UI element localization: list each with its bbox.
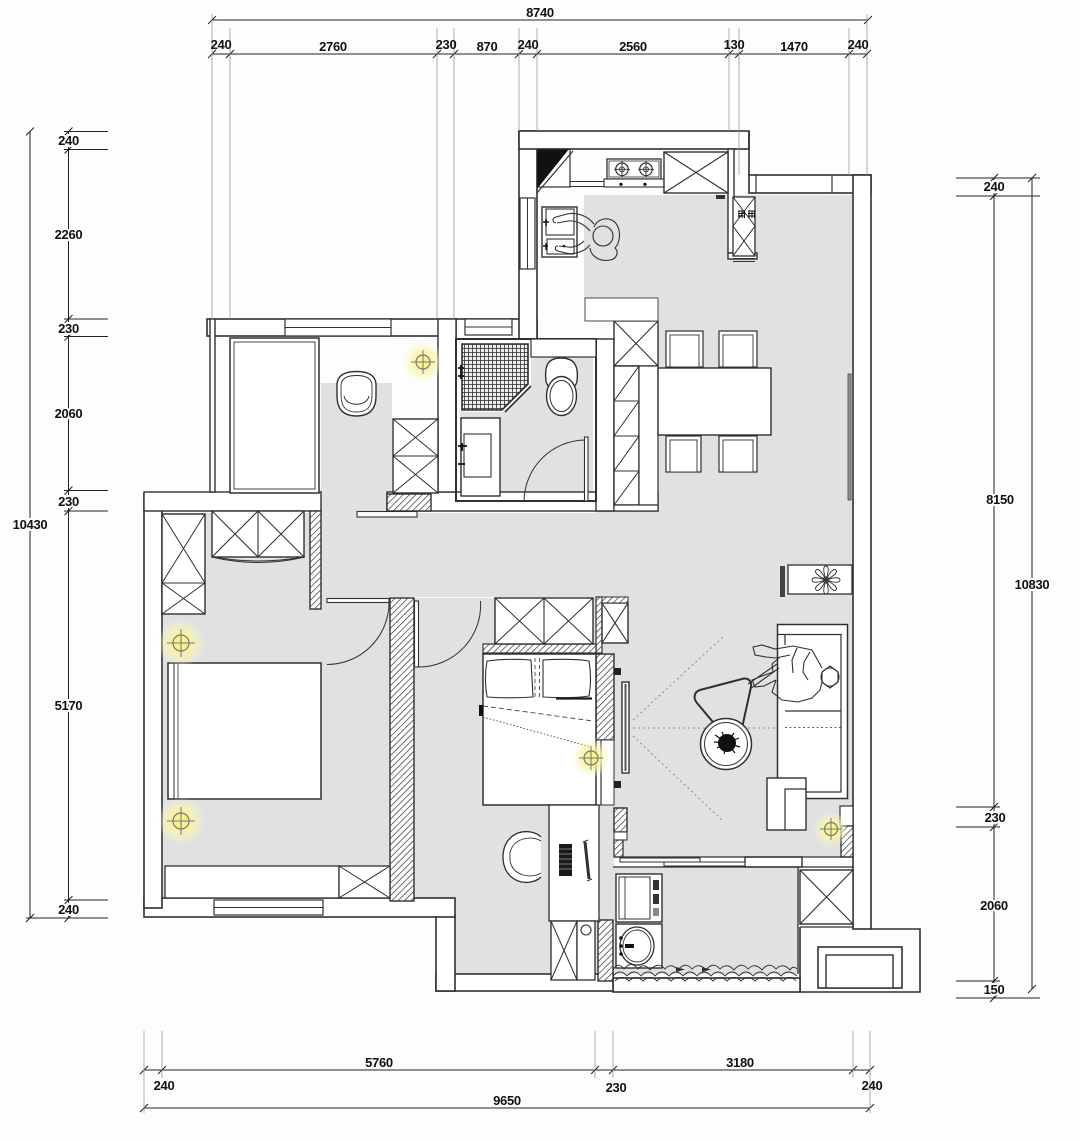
svg-text:240: 240: [154, 1078, 175, 1093]
svg-text:230: 230: [985, 810, 1006, 825]
svg-text:240: 240: [848, 37, 869, 52]
svg-text:5170: 5170: [55, 698, 83, 713]
svg-text:10830: 10830: [1015, 577, 1050, 592]
svg-text:130: 130: [724, 37, 745, 52]
svg-text:2060: 2060: [55, 406, 83, 421]
svg-text:8740: 8740: [526, 5, 554, 20]
svg-text:150: 150: [984, 982, 1005, 997]
svg-text:230: 230: [58, 321, 79, 336]
svg-text:2260: 2260: [55, 227, 83, 242]
svg-text:2560: 2560: [619, 39, 647, 54]
svg-text:230: 230: [606, 1080, 627, 1095]
svg-text:2760: 2760: [319, 39, 347, 54]
svg-text:240: 240: [984, 179, 1005, 194]
svg-text:240: 240: [58, 133, 79, 148]
svg-text:10430: 10430: [13, 517, 48, 532]
svg-text:240: 240: [862, 1078, 883, 1093]
svg-text:240: 240: [211, 37, 232, 52]
svg-text:870: 870: [477, 39, 498, 54]
svg-text:2060: 2060: [980, 898, 1008, 913]
svg-text:5760: 5760: [365, 1055, 393, 1070]
svg-text:1470: 1470: [780, 39, 808, 54]
svg-text:230: 230: [436, 37, 457, 52]
svg-text:230: 230: [58, 494, 79, 509]
svg-text:9650: 9650: [493, 1093, 521, 1108]
svg-text:3180: 3180: [726, 1055, 754, 1070]
svg-text:240: 240: [518, 37, 539, 52]
svg-text:240: 240: [58, 902, 79, 917]
svg-text:8150: 8150: [986, 492, 1014, 507]
